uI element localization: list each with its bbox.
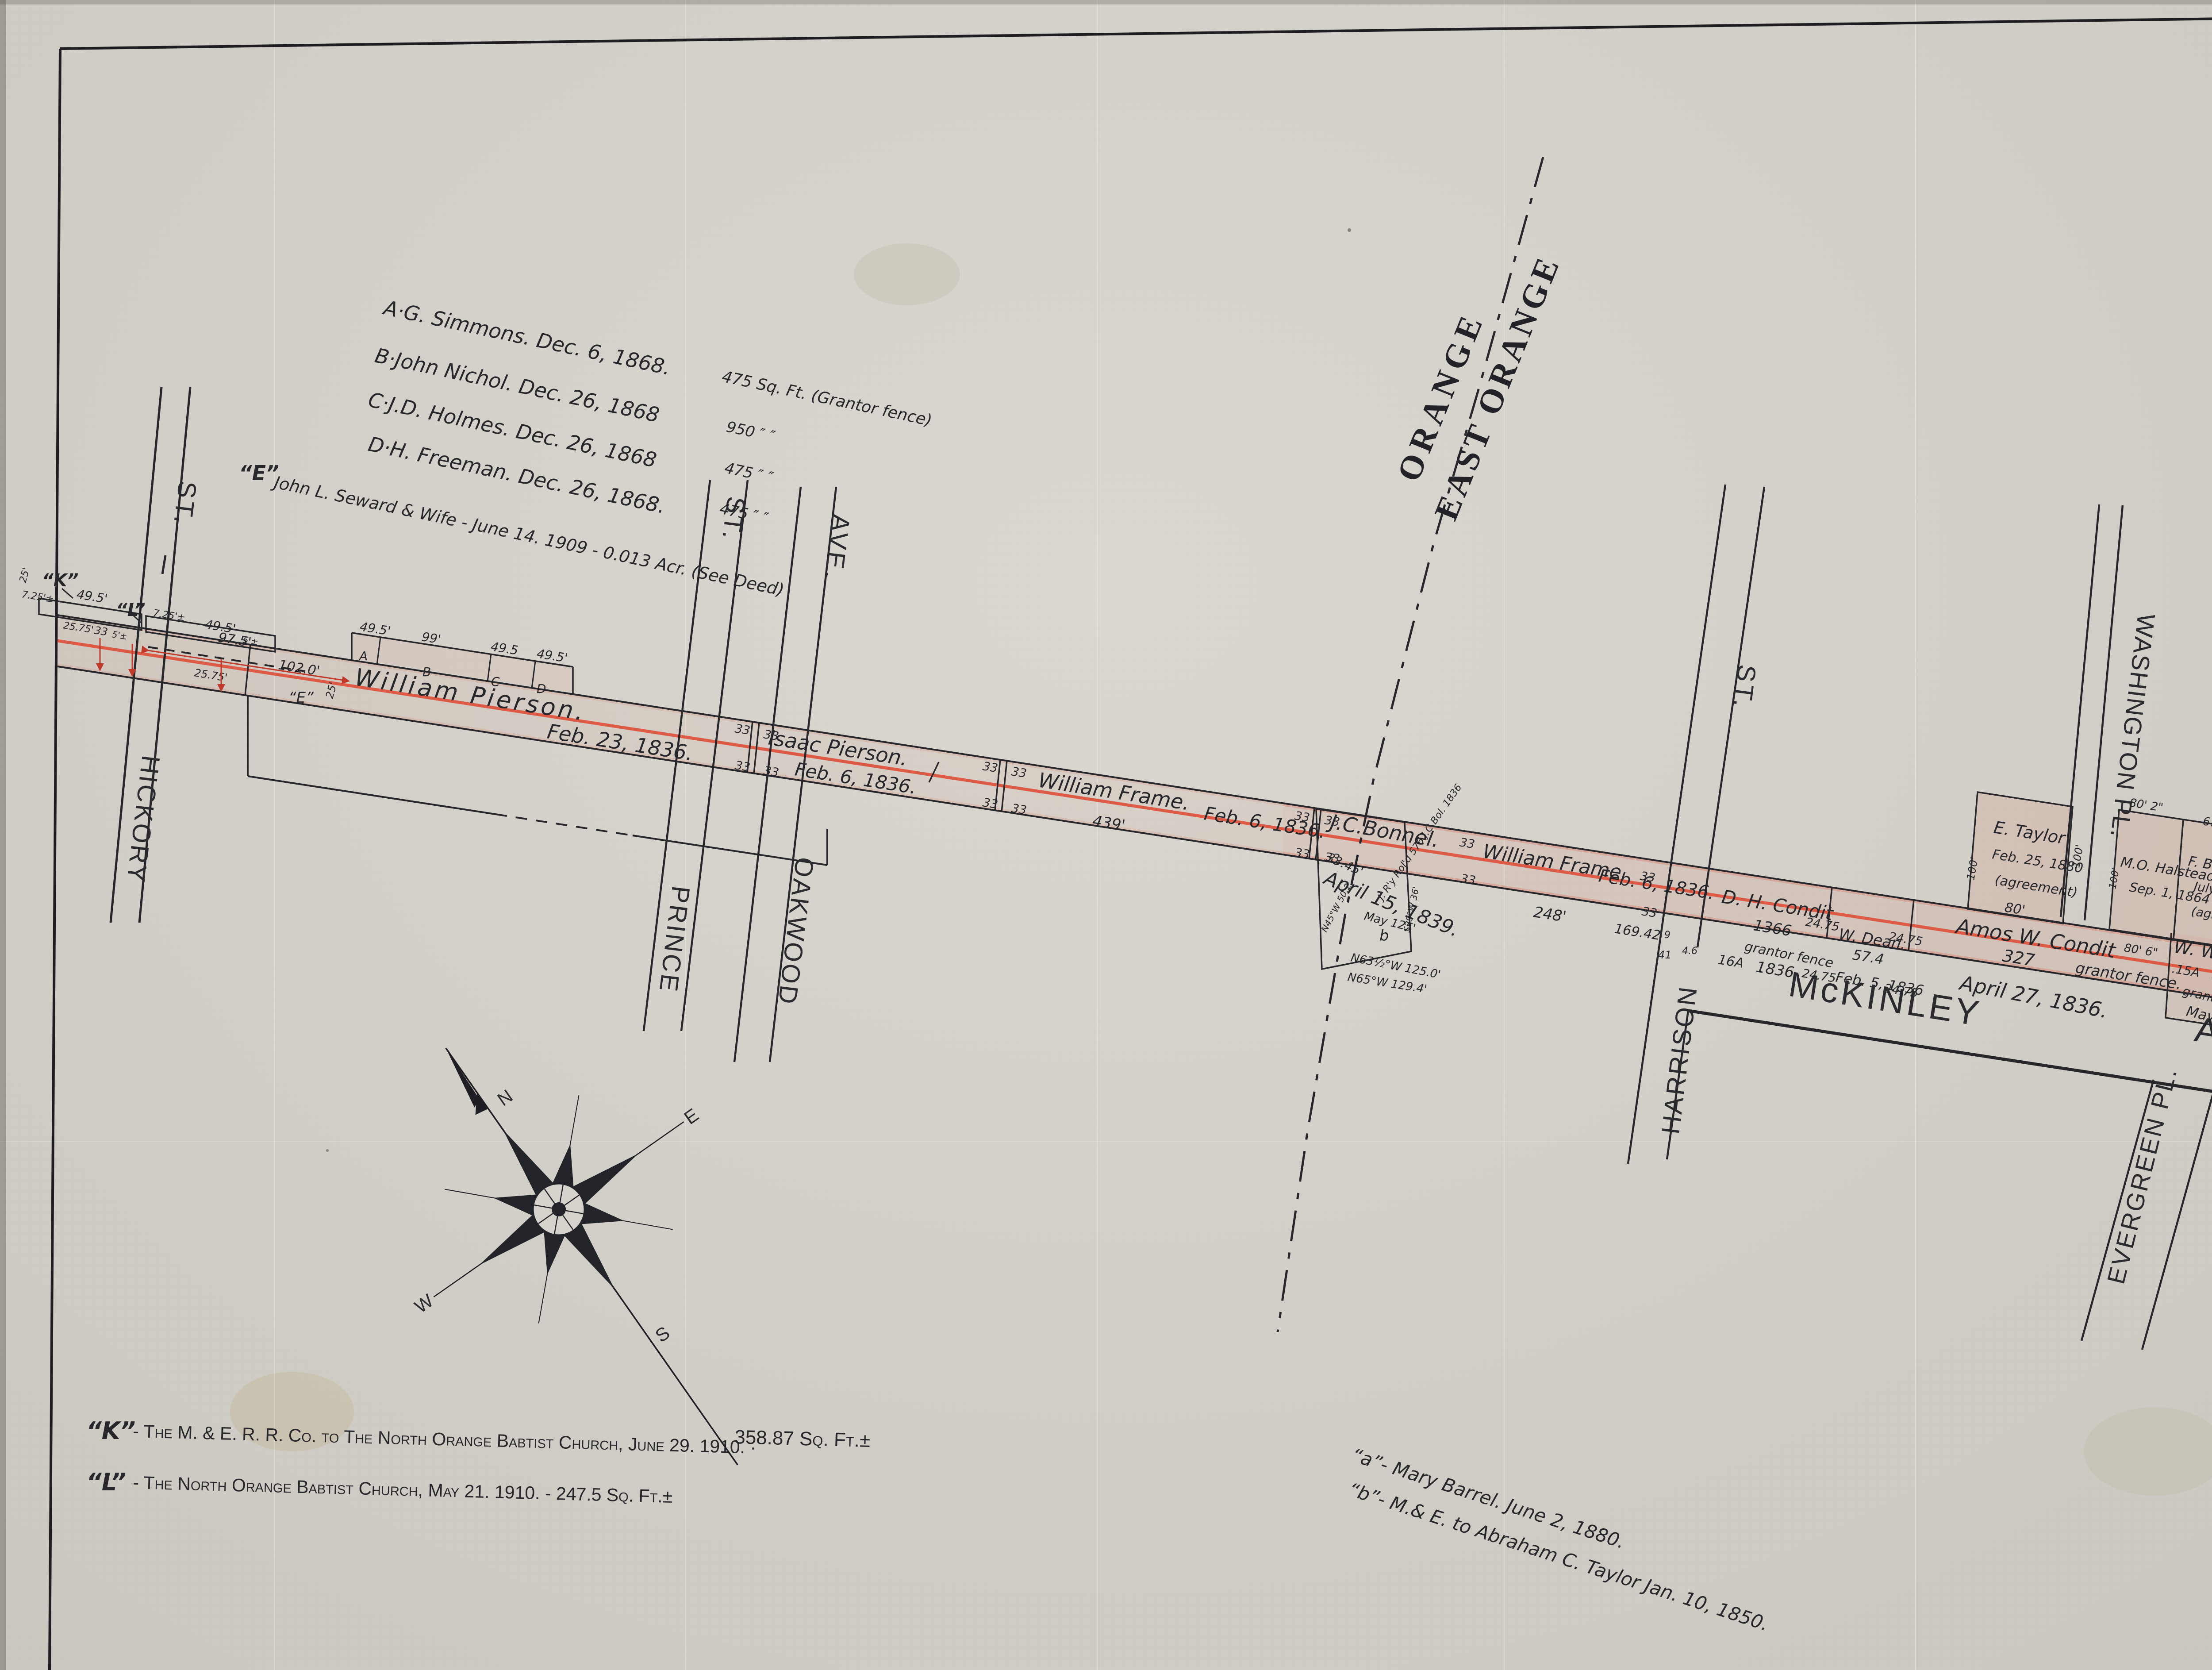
dim-33: 33	[734, 722, 751, 738]
dim-33: 33	[1639, 869, 1656, 885]
compass-label-e: E	[680, 1104, 703, 1128]
dim-33: 33	[734, 758, 751, 774]
compass-label-s: S	[651, 1322, 673, 1347]
dim-33: 33	[982, 796, 999, 812]
dim-33: 33	[1459, 835, 1476, 851]
compass-north-arrowhead	[437, 1048, 483, 1107]
compass-rose: N E S W	[304, 952, 876, 1565]
dim-33: 33	[982, 759, 999, 775]
dim-33: 33	[1294, 809, 1311, 825]
compass-label-w: W	[411, 1290, 437, 1317]
legend-l-mark: “L”	[86, 1468, 126, 1496]
deed-row-b-value: 950 ″ ″	[725, 418, 777, 446]
legend-k-value: 358.87 Sq. Ft.±	[734, 1426, 871, 1451]
street-label-oakwood: OAKWOOD	[772, 855, 819, 1007]
deed-row-e-mark: “E”	[239, 461, 279, 485]
parcel-bonnel: J.C.Bonnel. April 15, 1839. 33.45' J. R'…	[1316, 782, 1464, 997]
parcel-area-dh-condit: 16A	[1717, 952, 1745, 971]
street-label-harrison: HARRISON	[1656, 984, 1703, 1136]
dim-33: 33	[1010, 801, 1028, 817]
street-label-oakwood-suffix: AVE.	[819, 512, 856, 583]
border-line-left	[50, 49, 60, 1670]
dim-33: 33	[1641, 904, 1658, 920]
dim-9: 9	[1664, 930, 1671, 941]
dim-49-5: 49.5'	[76, 587, 108, 606]
dim-b-mark: b	[1379, 927, 1389, 945]
street-mckinley: McKINLEY AVE.	[1688, 964, 2212, 1133]
dim-33: 33	[1459, 872, 1477, 888]
street-label-harrison-suffix: ST.	[1728, 663, 1762, 711]
dim-248: 248'	[1532, 903, 1567, 926]
dim-33: 33	[1294, 846, 1311, 862]
dim-33: 33	[763, 727, 780, 743]
dim-33: 33	[1010, 765, 1028, 781]
dim-67: 67	[2202, 815, 2212, 830]
deed-row-c-value: 475 ″ ″	[723, 459, 775, 487]
street-label-hickory: HICKORY	[121, 754, 165, 885]
legend: “K” - The M. & E. R. R. Co. to The North…	[86, 1417, 871, 1507]
street-label-hickory-suffix: ST.	[168, 479, 202, 527]
dim-25: 25'	[18, 566, 32, 584]
street-label-evergreen: EVERGREEN PL.	[2102, 1064, 2183, 1287]
dim-99: 99'	[421, 629, 442, 646]
dim-41: 41	[1658, 949, 1672, 961]
street-harrison: ST. HARRISON	[1628, 485, 1764, 1164]
dim-169-42: 169.42	[1613, 921, 1662, 943]
lot-a-label: A	[358, 649, 368, 663]
deed-notes: “a”- Mary Barrel. June 2, 1880. “b”- M.&…	[1346, 1444, 1771, 1635]
dim-7-25: 7.25'±	[152, 608, 186, 623]
lot-l-label: “L”	[116, 600, 146, 620]
dim-7-25: 7.25'±	[21, 589, 54, 605]
legend-k-text: - The M. & E. R. R. Co. to The North Ora…	[133, 1421, 757, 1458]
dim-33: 33	[763, 764, 780, 780]
lot-k-label: “K”	[42, 570, 79, 591]
compass-label-n: N	[494, 1085, 517, 1110]
valuation-map: 23 ST.	[0, 0, 2212, 1670]
map-canvas: 23 ST.	[0, 0, 2212, 1670]
dim-33: 33	[93, 624, 109, 638]
dim-33: 33	[1324, 813, 1341, 829]
paper-edge-top	[0, 0, 2212, 4]
border-line-top	[60, 15, 2212, 49]
deed-row-a-value: 475 Sq. Ft. (Grantor fence)	[720, 368, 933, 430]
dim-4-6: 4.6	[1682, 946, 1697, 957]
legend-l-text: - The North Orange Babtist Church, May 2…	[133, 1472, 673, 1507]
note-b: “b”- M.& E. to Abraham C. Taylor Jan. 10…	[1346, 1478, 1771, 1635]
dim-33: 33	[1324, 850, 1341, 866]
legend-k-mark: “K”	[86, 1417, 135, 1445]
street-evergreen: EVERGREEN PL.	[2081, 1064, 2212, 1350]
paper-edge-left	[0, 0, 6, 1670]
paper-aging	[0, 0, 2212, 1670]
lot-e-label: “E”	[288, 689, 314, 707]
municipal-boundary: ORANGE EAST ORANGE	[1278, 157, 1567, 1332]
